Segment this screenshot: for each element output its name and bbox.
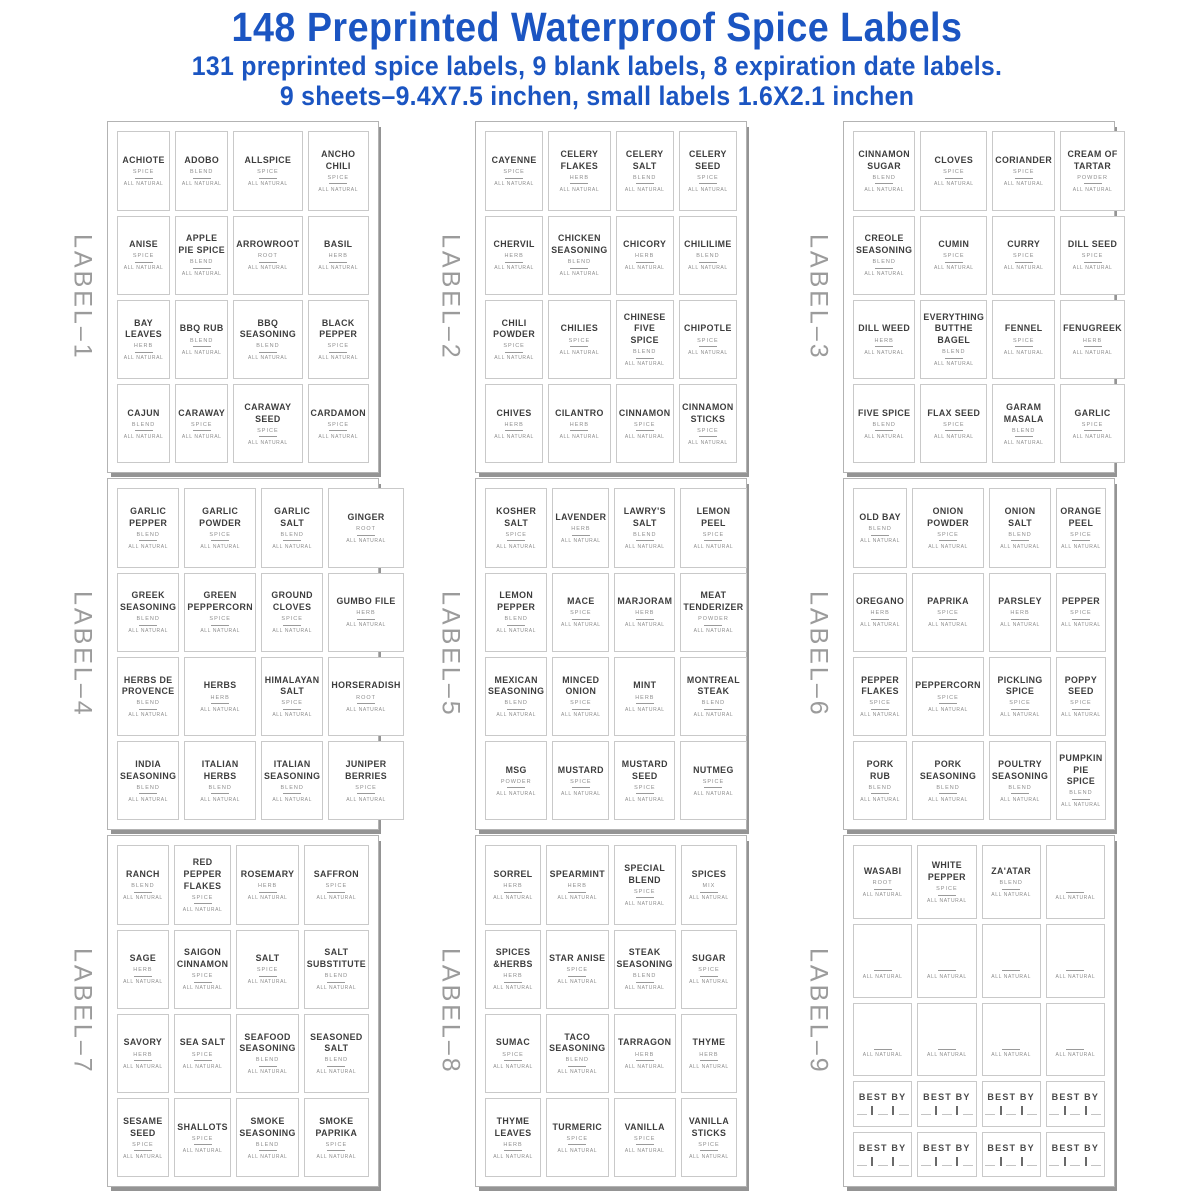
divider-line: [938, 970, 956, 971]
divider-line: [570, 268, 588, 269]
spice-label: APPLE PIE SPICEBLENDALL NATURAL: [175, 216, 228, 295]
divider-line: [357, 793, 375, 794]
spice-type: HERB: [635, 695, 654, 701]
date-tick-bar: [892, 1157, 894, 1166]
spice-label: SUGARSPICEALL NATURAL: [681, 930, 737, 1009]
spice-type: SPICE: [937, 695, 959, 701]
spice-name: EVERYTHING BUTTHE BAGEL: [923, 312, 984, 347]
spice-label: BASILHERBALL NATURAL: [308, 216, 370, 295]
spice-label: PEPPER FLAKESSPICEALL NATURAL: [853, 657, 907, 736]
sheet-page: ACHIOTESPICEALL NATURALADOBOBLENDALL NAT…: [107, 121, 379, 473]
spice-type: BLEND: [131, 883, 154, 889]
spice-type: SPICE: [698, 967, 720, 973]
spice-type: SPICE: [132, 1142, 154, 1148]
spice-label: MACESPICEALL NATURAL: [552, 573, 609, 652]
spice-label: FLAX SEEDSPICEALL NATURAL: [920, 384, 987, 463]
divider-line: [194, 1144, 212, 1145]
best-by-label: BEST BY: [917, 1132, 976, 1178]
spice-type: BLEND: [190, 169, 213, 175]
all-natural-text: ALL NATURAL: [128, 797, 168, 803]
date-tick-bar: [1021, 1106, 1023, 1115]
divider-line: [704, 709, 722, 710]
spice-type: SPICE: [326, 1142, 348, 1148]
divider-line: [1072, 540, 1090, 541]
all-natural-text: ALL NATURAL: [182, 271, 222, 277]
spice-name: ANCHO CHILI: [311, 149, 367, 172]
spice-name: STEAK SEASONING: [617, 947, 673, 970]
spice-type: HERB: [568, 883, 587, 889]
spice-label: ANCHO CHILISPICEALL NATURAL: [308, 131, 370, 210]
divider-line: [194, 1060, 212, 1061]
all-natural-text: ALL NATURAL: [625, 1064, 665, 1070]
all-natural-text: ALL NATURAL: [496, 544, 536, 550]
spice-name: CINNAMON: [619, 408, 671, 420]
divider-line: [570, 183, 588, 184]
spice-name: CARDAMON: [311, 408, 367, 420]
spice-label: BAY LEAVESHERBALL NATURAL: [117, 300, 170, 379]
spice-label: POPPY SEEDSPICEALL NATURAL: [1056, 657, 1105, 736]
divider-line: [329, 352, 347, 353]
divider-line: [938, 895, 956, 896]
spice-name: MEAT TENDERIZER: [683, 590, 743, 613]
divider-line: [699, 262, 717, 263]
spice-label: ALLSPICESPICEALL NATURAL: [233, 131, 302, 210]
sheet-side-label: LABEL–2: [425, 121, 475, 473]
all-natural-text: ALL NATURAL: [318, 355, 358, 361]
spice-label: SEASONED SALTBLENDALL NATURAL: [304, 1014, 369, 1093]
spice-label: DILL WEEDHERBALL NATURAL: [853, 300, 915, 379]
spice-name: GREEK SEASONING: [120, 590, 176, 613]
all-natural-text: ALL NATURAL: [625, 434, 665, 440]
spice-name: LEMON PEPPER: [488, 590, 544, 613]
all-natural-text: ALL NATURAL: [934, 361, 974, 367]
spice-label: PICKLING SPICESPICEALL NATURAL: [989, 657, 1051, 736]
spice-type: BLEND: [633, 532, 656, 538]
sheet-unit: LABEL–5KOSHER SALTSPICEALL NATURALLAVEND…: [425, 478, 793, 830]
divider-line: [259, 436, 277, 437]
blank-label: ALL NATURAL: [917, 1003, 976, 1077]
spice-type: SPICE: [570, 610, 592, 616]
spice-name: MEXICAN SEASONING: [488, 675, 544, 698]
all-natural-text: ALL NATURAL: [123, 1154, 163, 1160]
all-natural-text: ALL NATURAL: [934, 434, 974, 440]
divider-line: [327, 1066, 345, 1067]
spice-name: PUMPKIN PIE SPICE: [1059, 753, 1102, 788]
all-natural-text: ALL NATURAL: [496, 628, 536, 634]
spice-name: PARSLEY: [998, 596, 1042, 608]
spice-name: CUMIN: [938, 239, 969, 251]
best-by-text: BEST BY: [859, 1092, 906, 1102]
spice-name: CHIPOTLE: [684, 323, 732, 335]
all-natural-text: ALL NATURAL: [927, 898, 967, 904]
page: { "header": { "title": "148 Preprinted W…: [0, 0, 1194, 1194]
blank-label: ALL NATURAL: [917, 924, 976, 998]
divider-line: [945, 262, 963, 263]
sheet-side-label: LABEL–6: [793, 478, 843, 830]
spice-label: POULTRY SEASONINGBLENDALL NATURAL: [989, 741, 1051, 820]
divider-line: [135, 262, 153, 263]
sheet-side-label: LABEL–7: [57, 835, 107, 1187]
spice-name: HERBS: [204, 680, 237, 692]
all-natural-text: ALL NATURAL: [561, 791, 601, 797]
spice-name: FENUGREEK: [1063, 323, 1122, 335]
divider-line: [505, 352, 523, 353]
date-write-line: [921, 1114, 931, 1115]
all-natural-text: ALL NATURAL: [1073, 434, 1113, 440]
spice-type: BLEND: [256, 1057, 279, 1063]
all-natural-text: ALL NATURAL: [689, 979, 729, 985]
spice-name: MUSTARD: [558, 765, 604, 777]
spice-label: THYMEHERBALL NATURAL: [681, 1014, 737, 1093]
spice-label: SMOKE PAPRIKASPICEALL NATURAL: [304, 1098, 369, 1177]
spice-name: SORREL: [494, 869, 533, 881]
spice-name: CELERY SALT: [619, 149, 671, 172]
spice-name: CHERVIL: [493, 239, 534, 251]
spice-type: HERB: [1083, 338, 1102, 344]
spice-type: BLEND: [633, 349, 656, 355]
spice-label: PEPPERSPICEALL NATURAL: [1056, 573, 1105, 652]
spice-name: CINNAMON SUGAR: [856, 149, 912, 172]
spice-type: BLEND: [873, 422, 896, 428]
all-natural-text: ALL NATURAL: [124, 355, 164, 361]
divider-line: [194, 903, 212, 904]
spice-type: SPICE: [326, 883, 348, 889]
all-natural-text: ALL NATURAL: [248, 265, 288, 271]
spice-name: DILL WEED: [858, 323, 910, 335]
divider-line: [1084, 430, 1102, 431]
spice-name: CHINESE FIVE SPICE: [619, 312, 671, 347]
divider-line: [636, 358, 654, 359]
all-natural-text: ALL NATURAL: [124, 181, 164, 187]
spice-name: SPICES &HERBS: [488, 947, 538, 970]
all-natural-text: ALL NATURAL: [1056, 895, 1096, 901]
spice-label: JUNIPER BERRIESSPICEALL NATURAL: [328, 741, 403, 820]
all-natural-text: ALL NATURAL: [864, 350, 904, 356]
all-natural-text: ALL NATURAL: [688, 440, 728, 446]
divider-line: [871, 709, 889, 710]
spice-label: SAGEHERBALL NATURAL: [117, 930, 169, 1009]
all-natural-text: ALL NATURAL: [123, 1064, 163, 1070]
all-natural-text: ALL NATURAL: [183, 1148, 223, 1154]
all-natural-text: ALL NATURAL: [248, 895, 288, 901]
divider-line: [193, 268, 211, 269]
all-natural-text: ALL NATURAL: [128, 544, 168, 550]
sheet-page: SORRELHERBALL NATURALSPEARMINTHERBALL NA…: [475, 835, 747, 1187]
all-natural-text: ALL NATURAL: [317, 1154, 357, 1160]
date-fill-marks: [921, 1106, 973, 1115]
all-natural-text: ALL NATURAL: [200, 797, 240, 803]
divider-line: [636, 540, 654, 541]
spice-name: SPICES: [692, 869, 727, 881]
spice-type: SPICE: [133, 253, 155, 259]
date-write-line: [857, 1114, 867, 1115]
date-write-line: [1027, 1165, 1037, 1166]
spice-label: THYME LEAVESHERBALL NATURAL: [485, 1098, 541, 1177]
all-natural-text: ALL NATURAL: [1061, 802, 1101, 808]
spice-label: GARAM MASALABLENDALL NATURAL: [992, 384, 1055, 463]
date-write-line: [878, 1114, 888, 1115]
spice-label: CLOVESSPICEALL NATURAL: [920, 131, 987, 210]
divider-line: [636, 793, 654, 794]
spice-type: HERB: [570, 422, 589, 428]
all-natural-text: ALL NATURAL: [272, 628, 312, 634]
spice-name: CINNAMON STICKS: [682, 402, 734, 425]
product-subtitle-1: 131 preprinted spice labels, 9 blank lab…: [48, 51, 1146, 81]
spice-label: SESAME SEEDSPICEALL NATURAL: [117, 1098, 169, 1177]
spice-name: GREEN PEPPERCORN: [187, 590, 253, 613]
divider-line: [259, 352, 277, 353]
date-write-line: [899, 1165, 909, 1166]
divider-line: [700, 1060, 718, 1061]
divider-line: [504, 892, 522, 893]
all-natural-text: ALL NATURAL: [860, 622, 900, 628]
divider-line: [283, 625, 301, 626]
divider-line: [1002, 889, 1020, 890]
divider-line: [504, 982, 522, 983]
all-natural-text: ALL NATURAL: [493, 1154, 533, 1160]
all-natural-text: ALL NATURAL: [863, 1052, 903, 1058]
divider-line: [134, 892, 152, 893]
divider-line: [636, 430, 654, 431]
spice-label: ORANGE PEELSPICEALL NATURAL: [1056, 488, 1105, 567]
spice-name: SAGE: [130, 953, 157, 965]
divider-line: [139, 540, 157, 541]
all-natural-text: ALL NATURAL: [124, 434, 164, 440]
spice-type: BLEND: [936, 785, 959, 791]
spice-name: SEAFOOD SEASONING: [239, 1032, 295, 1055]
spice-type: SPICE: [943, 169, 965, 175]
divider-line: [139, 793, 157, 794]
sheet-side-label: LABEL–4: [57, 478, 107, 830]
spice-type: BLEND: [137, 616, 160, 622]
spice-name: PICKLING SPICE: [992, 675, 1048, 698]
all-natural-text: ALL NATURAL: [688, 265, 728, 271]
spice-name: LAWRY'S SALT: [617, 506, 672, 529]
spice-type: SPICE: [1082, 422, 1104, 428]
spice-name: PAPRIKA: [927, 596, 969, 608]
all-natural-text: ALL NATURAL: [625, 544, 665, 550]
spice-type: SPICE: [1070, 700, 1092, 706]
spice-label: MONTREAL STEAKBLENDALL NATURAL: [680, 657, 746, 736]
divider-line: [504, 1150, 522, 1151]
divider-line: [875, 430, 893, 431]
divider-line: [135, 430, 153, 431]
date-tick-bar: [1021, 1157, 1023, 1166]
divider-line: [507, 709, 525, 710]
date-write-line: [1027, 1114, 1037, 1115]
sheet-unit: LABEL–8SORRELHERBALL NATURALSPEARMINTHER…: [425, 835, 793, 1187]
spice-name: FENNEL: [1005, 323, 1043, 335]
divider-line: [874, 970, 892, 971]
spice-type: HERB: [635, 253, 654, 259]
spice-name: NUTMEG: [693, 765, 734, 777]
spice-type: BLEND: [1012, 428, 1035, 434]
all-natural-text: ALL NATURAL: [694, 628, 734, 634]
all-natural-text: ALL NATURAL: [928, 622, 968, 628]
spice-type: POWDER: [501, 779, 532, 785]
blank-label: ALL NATURAL: [853, 1003, 912, 1077]
spice-label: SMOKE SEASONINGBLENDALL NATURAL: [236, 1098, 298, 1177]
spice-type: SPICE: [697, 338, 719, 344]
all-natural-text: ALL NATURAL: [183, 985, 223, 991]
all-natural-text: ALL NATURAL: [689, 1064, 729, 1070]
spice-label: CREAM OF TARTARPOWDERALL NATURAL: [1060, 131, 1125, 210]
spice-type: SPICE: [327, 422, 349, 428]
divider-line: [636, 982, 654, 983]
spice-name: SHALLOTS: [177, 1122, 228, 1134]
spice-label: TURMERICSPICEALL NATURAL: [546, 1098, 608, 1177]
spice-name: CLOVES: [935, 155, 974, 167]
spice-label: SEAFOOD SEASONINGBLENDALL NATURAL: [236, 1014, 298, 1093]
spice-label: ADOBOBLENDALL NATURAL: [175, 131, 228, 210]
spice-name: MINT: [633, 680, 656, 692]
spice-label: VANILLASPICEALL NATURAL: [614, 1098, 676, 1177]
sheet-side-label: LABEL–1: [57, 121, 107, 473]
divider-line: [871, 793, 889, 794]
spice-name: MUSTARD SEED: [617, 759, 672, 782]
all-natural-text: ALL NATURAL: [123, 979, 163, 985]
spice-name: VANILLA STICKS: [684, 1116, 734, 1139]
divider-line: [329, 262, 347, 263]
date-write-line: [963, 1114, 973, 1115]
date-write-line: [1070, 1165, 1080, 1166]
divider-line: [939, 793, 957, 794]
spice-type: ROOT: [356, 695, 376, 701]
all-natural-text: ALL NATURAL: [557, 979, 597, 985]
spice-name: BLACK PEPPER: [311, 318, 367, 341]
spice-name: HIMALAYAN SALT: [264, 675, 320, 698]
sheet-unit: LABEL–7RANCHBLENDALL NATURALRED PEPPER F…: [57, 835, 425, 1187]
spice-type: SPICE: [503, 343, 525, 349]
spice-type: SPICE: [209, 616, 231, 622]
date-write-line: [921, 1165, 931, 1166]
spice-label: CARAWAY SEEDSPICEALL NATURAL: [233, 384, 302, 463]
spice-type: BLEND: [209, 785, 232, 791]
spice-name: SUMAC: [496, 1037, 530, 1049]
spice-name: CURRY: [1007, 239, 1040, 251]
spice-type: SPICE: [281, 616, 303, 622]
spice-name: POULTRY SEASONING: [992, 759, 1048, 782]
spice-type: BLEND: [505, 700, 528, 706]
spice-label: HERBS DE PROVENCEBLENDALL NATURAL: [117, 657, 179, 736]
spice-type: ROOT: [258, 253, 278, 259]
spice-type: BLEND: [942, 349, 965, 355]
spice-type: SPICE: [869, 700, 891, 706]
all-natural-text: ALL NATURAL: [318, 434, 358, 440]
all-natural-text: ALL NATURAL: [200, 707, 240, 713]
divider-line: [875, 346, 893, 347]
divider-line: [699, 183, 717, 184]
divider-line: [283, 793, 301, 794]
spice-label: LAVENDERHERBALL NATURAL: [552, 488, 609, 567]
spice-name: OREGANO: [856, 596, 904, 608]
spice-name: GARLIC: [1075, 408, 1111, 420]
spice-name: MINCED ONION: [555, 675, 606, 698]
divider-line: [568, 1066, 586, 1067]
blank-label: ALL NATURAL: [1046, 845, 1105, 919]
spice-label: CELERY SALTBLENDALL NATURAL: [616, 131, 674, 210]
date-write-line: [1049, 1114, 1059, 1115]
divider-line: [1011, 619, 1029, 620]
spice-type: SPICE: [567, 1136, 589, 1142]
divider-line: [939, 619, 957, 620]
spice-name: PEPPER FLAKES: [856, 675, 904, 698]
spice-label: PUMPKIN PIE SPICEBLENDALL NATURAL: [1056, 741, 1105, 820]
divider-line: [505, 262, 523, 263]
all-natural-text: ALL NATURAL: [560, 350, 600, 356]
blank-label: ALL NATURAL: [853, 924, 912, 998]
spice-name: CILANTRO: [555, 408, 604, 420]
spice-name: OLD BAY: [859, 512, 901, 524]
sheet-unit: LABEL–2CAYENNESPICEALL NATURALCELERY FLA…: [425, 121, 793, 473]
spice-name: CHIVES: [497, 408, 532, 420]
all-natural-text: ALL NATURAL: [1004, 265, 1044, 271]
header: 148 Preprinted Waterproof Spice Labels 1…: [0, 0, 1194, 111]
spice-label: GROUND CLOVESSPICEALL NATURAL: [261, 573, 323, 652]
spice-label: NUTMEGSPICEALL NATURAL: [680, 741, 746, 820]
spice-label: HERBSHERBALL NATURAL: [184, 657, 256, 736]
all-natural-text: ALL NATURAL: [346, 707, 386, 713]
best-by-label: BEST BY: [853, 1081, 912, 1127]
spice-type: SPICE: [937, 532, 959, 538]
spice-name: MACE: [567, 596, 595, 608]
all-natural-text: ALL NATURAL: [625, 1148, 665, 1154]
divider-line: [1084, 183, 1102, 184]
all-natural-text: ALL NATURAL: [1000, 712, 1040, 718]
best-by-text: BEST BY: [923, 1092, 970, 1102]
sheet-side-label: LABEL–9: [793, 835, 843, 1187]
divider-line: [636, 1060, 654, 1061]
spice-name: GARLIC PEPPER: [120, 506, 176, 529]
spice-label: PORK SEASONINGBLENDALL NATURAL: [912, 741, 984, 820]
spice-label: CARDAMONSPICEALL NATURAL: [308, 384, 370, 463]
spice-type: BLEND: [137, 700, 160, 706]
spice-type: SPICE: [1070, 532, 1092, 538]
all-natural-text: ALL NATURAL: [182, 350, 222, 356]
date-write-line: [942, 1165, 952, 1166]
all-natural-text: ALL NATURAL: [1061, 544, 1101, 550]
all-natural-text: ALL NATURAL: [625, 901, 665, 907]
spice-name: STAR ANISE: [549, 953, 605, 965]
spice-name: MONTREAL STEAK: [683, 675, 743, 698]
divider-line: [505, 430, 523, 431]
spice-type: HERB: [504, 422, 523, 428]
divider-line: [1011, 709, 1029, 710]
spice-name: INDIA SEASONING: [120, 759, 176, 782]
best-by-text: BEST BY: [1052, 1092, 1099, 1102]
all-natural-text: ALL NATURAL: [694, 712, 734, 718]
spice-type: BLEND: [137, 532, 160, 538]
spice-label: CREOLE SEASONINGBLENDALL NATURAL: [853, 216, 915, 295]
divider-line: [1072, 619, 1090, 620]
spice-name: VANILLA: [625, 1122, 665, 1134]
spice-label: OREGANOHERBALL NATURAL: [853, 573, 907, 652]
spice-label: CINNAMON STICKSSPICEALL NATURAL: [679, 384, 737, 463]
spice-name: DILL SEED: [1068, 239, 1117, 251]
all-natural-text: ALL NATURAL: [248, 1154, 288, 1160]
spice-label: SPICES &HERBSHERBALL NATURAL: [485, 930, 541, 1009]
spice-label: CILANTROHERBALL NATURAL: [548, 384, 610, 463]
spice-label: SHALLOTSSPICEALL NATURAL: [174, 1098, 232, 1177]
all-natural-text: ALL NATURAL: [864, 187, 904, 193]
best-by-text: BEST BY: [987, 1092, 1034, 1102]
spice-type: HERB: [570, 175, 589, 181]
spice-label: ZA'ATARBLENDALL NATURAL: [982, 845, 1041, 919]
date-tick-bar: [871, 1157, 873, 1166]
spice-type: SPICE: [192, 895, 214, 901]
spice-label: PAPRIKASPICEALL NATURAL: [912, 573, 984, 652]
spice-name: WASABI: [864, 866, 902, 878]
